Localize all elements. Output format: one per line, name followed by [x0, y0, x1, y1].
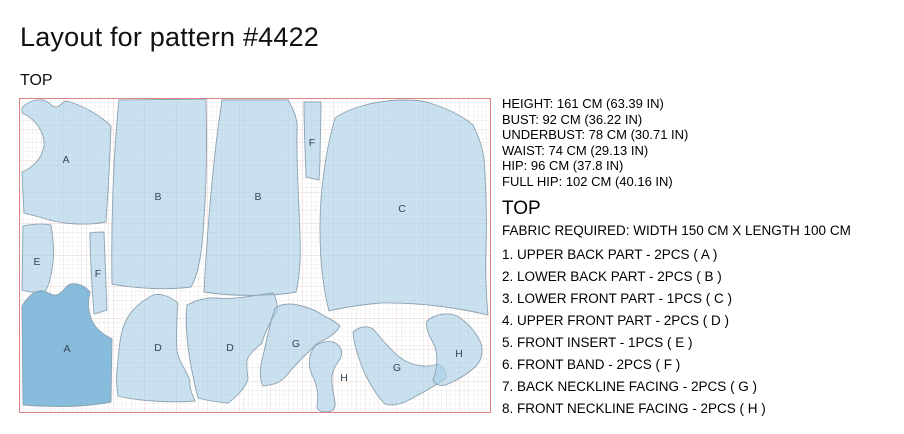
piece-list-item-6: 6. FRONT BAND - 2PCS ( F )	[502, 354, 900, 376]
measurement-full-hip: FULL HIP: 102 CM (40.16 IN)	[502, 174, 900, 190]
measurement-hip: HIP: 96 CM (37.8 IN)	[502, 158, 900, 174]
measurement-waist: WAIST: 74 CM (29.13 IN)	[502, 143, 900, 159]
piece-label-G: G	[393, 362, 401, 374]
piece-label-E: E	[33, 256, 40, 268]
piece-list-item-1: 1. UPPER BACK PART - 2PCS ( A )	[502, 244, 900, 266]
piece-label-B: B	[254, 191, 261, 203]
piece-label-C: C	[398, 203, 406, 215]
piece-label-H: H	[455, 348, 463, 360]
pattern-layout-panel: ABBFCEFADDGHGH	[19, 98, 491, 413]
piece-label-D: D	[154, 342, 162, 354]
measurement-height: HEIGHT: 161 CM (63.39 IN)	[502, 96, 900, 112]
pieces-list: 1. UPPER BACK PART - 2PCS ( A ) 2. LOWER…	[502, 244, 900, 420]
piece-label-A: A	[63, 343, 70, 355]
piece-label-A: A	[62, 154, 69, 166]
measurement-underbust: UNDERBUST: 78 CM (30.71 IN)	[502, 127, 900, 143]
piece-list-item-3: 3. LOWER FRONT PART - 1PCS ( C )	[502, 288, 900, 310]
pattern-layout-svg: ABBFCEFADDGHGH	[19, 98, 491, 413]
layout-section-label: TOP	[20, 72, 53, 90]
piece-list-item-5: 5. FRONT INSERT - 1PCS ( E )	[502, 332, 900, 354]
piece-list-item-4: 4. UPPER FRONT PART - 2PCS ( D )	[502, 310, 900, 332]
info-section-heading: TOP	[502, 198, 900, 220]
piece-list-item-8: 8. FRONT NECKLINE FACING - 2PCS ( H )	[502, 398, 900, 420]
measurement-bust: BUST: 92 CM (36.22 IN)	[502, 112, 900, 128]
piece-list-item-2: 2. LOWER BACK PART - 2PCS ( B )	[502, 266, 900, 288]
piece-label-G: G	[292, 338, 300, 350]
piece-label-H: H	[340, 372, 348, 384]
piece-label-F: F	[309, 137, 315, 149]
piece-list-item-7: 7. BACK NECKLINE FACING - 2PCS ( G )	[502, 376, 900, 398]
piece-label-F: F	[95, 268, 101, 280]
piece-label-B: B	[154, 191, 161, 203]
info-panel: HEIGHT: 161 CM (63.39 IN) BUST: 92 CM (3…	[502, 96, 900, 420]
pattern-layout-page: Layout for pattern #4422 TOP	[0, 0, 904, 434]
pattern-piece-B-2[interactable]	[204, 100, 300, 295]
page-title: Layout for pattern #4422	[20, 22, 319, 53]
piece-label-D: D	[226, 342, 234, 354]
fabric-required-line: FABRIC REQUIRED: WIDTH 150 CM X LENGTH 1…	[502, 223, 900, 239]
